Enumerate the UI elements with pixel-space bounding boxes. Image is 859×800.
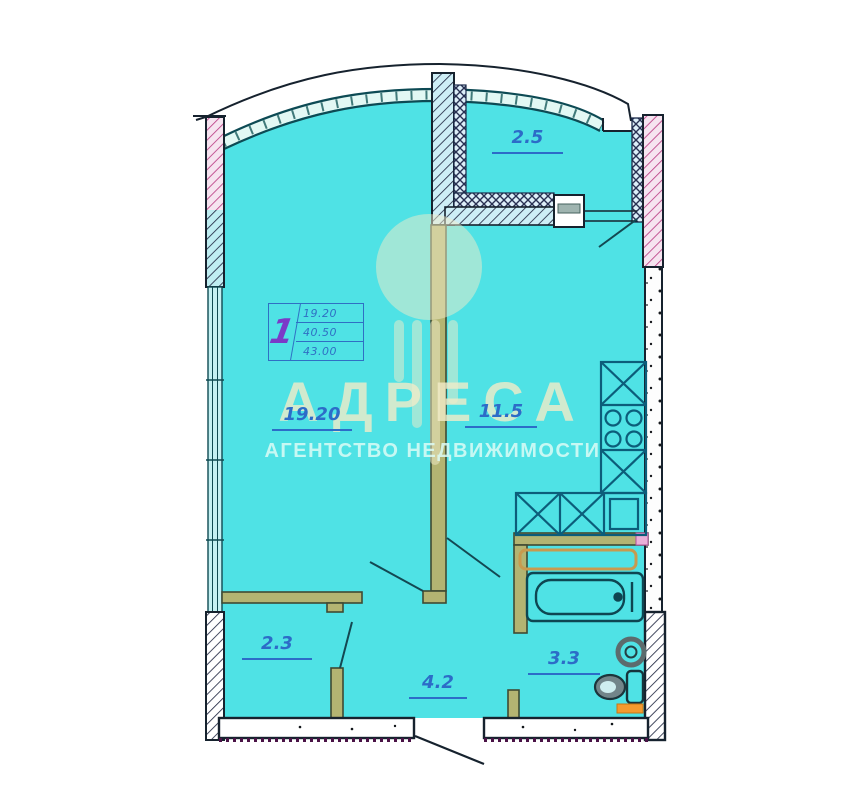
storage-door-stub xyxy=(331,668,343,718)
left-exterior-wall xyxy=(193,116,226,740)
room-label-hallway: 4.2 xyxy=(409,672,467,699)
storage-wall xyxy=(222,592,362,603)
orange-unit xyxy=(617,704,643,713)
central-partition xyxy=(431,225,446,591)
room-label-storage: 2.3 xyxy=(242,633,312,660)
room-label-bathroom: 3.3 xyxy=(528,648,600,675)
room-label-balcony: 2.5 xyxy=(492,127,563,154)
apartment-area-value: 40.50 xyxy=(296,323,363,342)
floor-plan-screenshot: АДРЕСА АГЕНТСТВО НЕДВИЖИМОСТИ 1 19.20 40… xyxy=(0,0,859,800)
entrance-door-swing xyxy=(415,736,484,764)
bathroom-door-stub xyxy=(508,690,519,718)
apartment-info-table: 1 19.20 40.50 43.00 xyxy=(268,303,364,361)
living-area-value: 19.20 xyxy=(296,304,363,323)
room-label-living: 19.20 xyxy=(272,404,352,431)
total-area-value: 43.00 xyxy=(296,342,363,360)
ventilation-shaft xyxy=(554,195,584,227)
living-room-window xyxy=(206,287,224,612)
room-label-kitchen: 11.5 xyxy=(465,401,537,428)
bottom-exterior-wall xyxy=(219,718,648,764)
